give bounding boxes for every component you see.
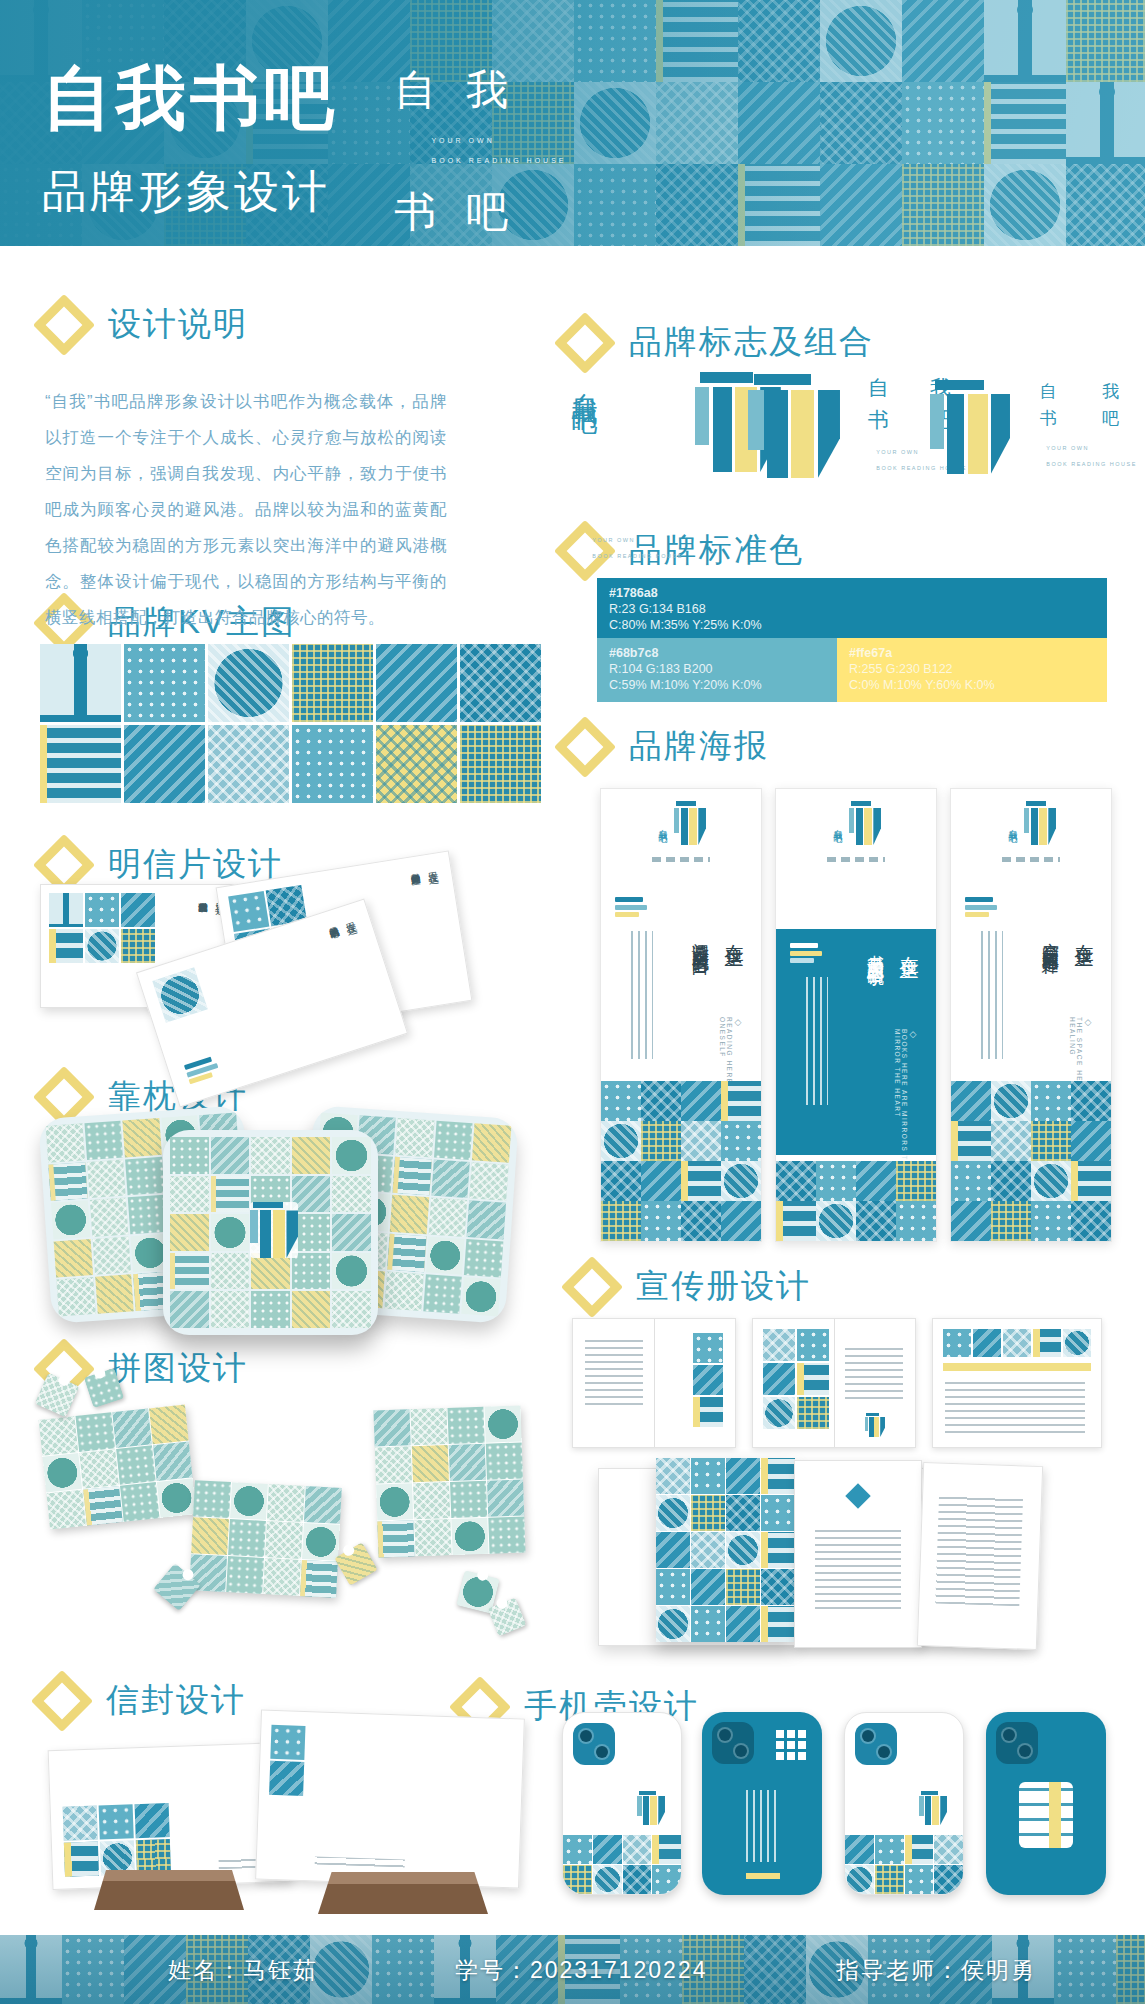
brochure-spread-1 (572, 1318, 736, 1448)
poster-logo-caption (1002, 857, 1060, 862)
pattern-tile (776, 1161, 816, 1201)
pattern-tile (856, 1161, 896, 1201)
trifold-right-panel (917, 1462, 1043, 1650)
footer-student-id: 学号：202317120224 (455, 1955, 708, 1986)
pattern-tile (373, 1409, 410, 1446)
pattern-tile (951, 1081, 991, 1121)
pattern-tile (652, 1865, 681, 1894)
pattern-tile (89, 1198, 128, 1237)
brand-mark (1024, 801, 1056, 845)
puzzle-mockups (40, 1388, 540, 1663)
brand-logotype: 自 我 YOUR OWN BOOK READING HOUSE 书 吧 (392, 62, 528, 240)
pattern-tile (191, 1517, 229, 1555)
pattern-tile (211, 1253, 250, 1290)
pattern-tile (845, 1835, 874, 1864)
poster-teal-panel: 在这里 书籍是照内心的镜子 ◇ BOOKS HERE ARE MIRRORS T… (776, 929, 936, 1155)
pattern-tile (376, 644, 457, 722)
pattern-tile (124, 644, 205, 722)
pattern-tile (951, 1161, 991, 1201)
diamond-icon (33, 293, 95, 355)
puzzle-cluster (39, 1405, 197, 1530)
pattern-tile (304, 1486, 342, 1524)
pattern-tile (385, 1272, 424, 1311)
diamond-mark (845, 1483, 870, 1508)
pattern-tile (797, 1329, 829, 1361)
section-title: 拼图设计 (108, 1346, 248, 1391)
poster-pattern-grid (951, 1081, 1111, 1241)
pattern-tile (40, 644, 121, 722)
pattern-tile (875, 1865, 904, 1894)
camera-module (573, 1723, 615, 1765)
brand-poster-2: 自我书吧 在这里 书籍是照内心的镜子 ◇ BOOKS HERE ARE MIRR… (775, 788, 937, 1242)
grid-logo (776, 1728, 808, 1760)
pattern-tile (691, 1569, 725, 1605)
id-label: 学号： (455, 1957, 530, 1983)
pattern-tile (450, 1481, 487, 1518)
phone-case-3 (844, 1712, 964, 1895)
poster-logo-chars: 自我书吧 (831, 801, 844, 851)
logo-char: 自 (392, 62, 438, 118)
pattern-tile (228, 1519, 266, 1557)
poster-logo-caption (827, 857, 885, 862)
envelope-caption-lines (315, 1856, 405, 1867)
pattern-tile (593, 1865, 622, 1894)
pattern-tile (211, 1291, 250, 1328)
brand-poster-1: 自我书吧 在这里 阅读是对自我的告白 ◇ READING HERE IS A C… (600, 788, 762, 1242)
pattern-tile (693, 1365, 723, 1395)
book-window-logo (1019, 1782, 1073, 1848)
poster-board: 自我书吧 品牌形象设计 自 我 YOUR OWN BOOK READING HO… (0, 0, 1145, 2004)
pillow-mockups (45, 1102, 525, 1337)
swatch-hex: #1786a8 (609, 585, 1107, 601)
brochure-text-lines (815, 1525, 901, 1609)
pattern-tile (593, 1835, 622, 1864)
pattern-tile (462, 1277, 501, 1316)
pattern-tile (377, 1520, 414, 1557)
diamond-icon (554, 715, 616, 777)
postcard-pattern (49, 893, 155, 963)
pattern-tile (447, 1407, 484, 1444)
pattern-tile (170, 1214, 209, 1251)
name-label: 姓名： (168, 1957, 243, 1983)
pattern-tile (763, 1397, 795, 1429)
pattern-tile (656, 1606, 690, 1642)
pattern-tile (251, 1253, 290, 1290)
pattern-tile (681, 1201, 721, 1241)
brochure-pattern (693, 1333, 723, 1427)
camera-module (855, 1723, 897, 1765)
books-icon (615, 897, 647, 919)
pattern-tile (135, 1803, 170, 1838)
diamond-icon (561, 1255, 623, 1317)
pattern-tile (170, 1137, 209, 1174)
pattern-tile (211, 1176, 250, 1213)
pattern-tile (121, 929, 155, 963)
swatch-rgb: R:255 G:230 B122 (849, 661, 1107, 677)
pattern-tile (905, 1835, 934, 1864)
pattern-tile (83, 1486, 123, 1526)
logo-english-caption: YOUR OWN BOOK READING HOUSE (392, 126, 528, 176)
pattern-tile (691, 1606, 725, 1642)
pattern-tile (376, 725, 457, 803)
footer-name: 姓名：马钰茹 (168, 1955, 318, 1986)
pattern-tile (991, 1121, 1031, 1161)
poster-logo-chars: 自我书吧 (1006, 801, 1019, 851)
pattern-tile (332, 1253, 371, 1290)
color-swatch-yellow: #ffe67a R:255 G:230 B122 C:0% M:10% Y:60… (837, 638, 1107, 702)
pattern-tile (412, 1445, 449, 1482)
logo-char: 吧 (464, 184, 510, 240)
pattern-tile (563, 1835, 592, 1864)
pattern-tile (726, 1532, 760, 1568)
brochure-spread-3 (932, 1318, 1102, 1448)
books-icon (184, 1055, 221, 1086)
brand-mark (865, 1413, 885, 1437)
lockup-en-caption: YOUR OWN BOOK READING HOUSE (568, 528, 683, 568)
envelope-2 (255, 1709, 525, 1888)
pattern-tile (395, 1118, 434, 1157)
pattern-tile (393, 1156, 432, 1195)
pattern-tile (292, 725, 373, 803)
poster-logo: 自我书吧 (1002, 801, 1060, 862)
pattern-tile (121, 893, 155, 927)
pattern-tile (49, 929, 83, 963)
pattern-tile (761, 1458, 795, 1494)
color-swatch-dark-teal: #1786a8 R:23 G:134 B168 C:80% M:35% Y:25… (597, 578, 1107, 638)
pattern-tile (693, 1397, 723, 1427)
section-header-poster: 品牌海报 (563, 724, 769, 769)
pattern-tile (934, 1865, 963, 1894)
lockup-chars: 自 我 书 吧 (1022, 380, 1137, 430)
puzzle-cluster (373, 1405, 525, 1557)
lockup-en1: YOUR OWN (876, 449, 919, 455)
pattern-tile (470, 1162, 509, 1201)
color-swatch-light-teal: #68b7c8 R:104 G:183 B200 C:59% M:10% Y:2… (597, 638, 837, 702)
pattern-tile (905, 1865, 934, 1894)
poster-pattern-grid (601, 1081, 761, 1241)
brochure-text-lines (845, 1343, 903, 1399)
diamond-icon (554, 311, 616, 373)
pattern-tile (488, 1516, 525, 1553)
pattern-tile (1063, 1329, 1091, 1357)
pattern-tile (49, 893, 83, 927)
pattern-tile (623, 1865, 652, 1894)
pattern-tile (292, 1291, 331, 1328)
pattern-tile (991, 1081, 1031, 1121)
pattern-tile (641, 1161, 681, 1201)
pattern-tile (875, 1835, 904, 1864)
pattern-tile (656, 1495, 690, 1531)
brand-mark (849, 801, 881, 845)
pattern-tile (973, 1329, 1001, 1357)
pattern-tile (230, 1482, 268, 1520)
brand-mark (919, 1791, 947, 1825)
pattern-tile (460, 725, 541, 803)
swatch-hex: #68b7c8 (609, 645, 837, 661)
brand-mark (930, 380, 1010, 474)
pattern-tile (263, 1558, 301, 1596)
poster-en-text: BOOKS HERE ARE MIRRORS THAT MIRROR THE H… (894, 1029, 908, 1178)
pattern-tile (896, 1161, 936, 1201)
pattern-tile (300, 1560, 338, 1598)
pattern-tile (54, 1239, 93, 1278)
case-logo-text (746, 1790, 780, 1862)
pattern-tile (691, 1458, 725, 1494)
pattern-tile (265, 1521, 303, 1559)
phone-case-1 (562, 1712, 682, 1895)
swatch-hex: #ffe67a (849, 645, 1107, 661)
lockup-en2: BOOK READING HOUSE (1046, 461, 1137, 467)
kv-pattern-grid (40, 644, 541, 803)
pattern-tile (991, 1201, 1031, 1241)
pattern-tile (46, 1123, 85, 1162)
brand-mark (674, 801, 706, 845)
section-header-logo-combo: 品牌标志及组合 (563, 320, 874, 365)
swatch-rgb: R:23 G:134 B168 (609, 601, 1107, 617)
pattern-tile (95, 1275, 134, 1314)
pattern-tile (375, 1446, 412, 1483)
wooden-stand (318, 1872, 488, 1914)
pattern-tile (761, 1606, 795, 1642)
pattern-tile (763, 1363, 795, 1395)
logo-char: 自 (852, 374, 904, 402)
pattern-tile (170, 1176, 209, 1213)
pattern-tile (128, 1195, 167, 1234)
pattern-tile (656, 1569, 690, 1605)
section-title: 宣传册设计 (636, 1264, 811, 1309)
pattern-tile (85, 929, 119, 963)
pattern-tile (434, 1121, 473, 1160)
books-icon (965, 897, 997, 919)
pattern-tile (761, 1532, 795, 1568)
pattern-tile (63, 1806, 98, 1841)
yellow-strip (943, 1363, 1091, 1371)
pattern-tile (124, 725, 205, 803)
name-value: 马钰茹 (243, 1957, 318, 1983)
pattern-tile (641, 1201, 681, 1241)
pattern-tile (193, 1480, 231, 1518)
brand-mark (250, 1202, 298, 1258)
trifold-pattern-panel (656, 1458, 795, 1642)
pattern-tile (1031, 1161, 1071, 1201)
logo-en-line2: BOOK READING HOUSE (432, 157, 567, 164)
pattern-tile (681, 1081, 721, 1121)
pattern-tile (64, 1841, 99, 1876)
pattern-tile (601, 1161, 641, 1201)
pattern-tile (292, 644, 373, 722)
pattern-tile (656, 1532, 690, 1568)
pattern-tile (1071, 1121, 1111, 1161)
envelope-pattern (269, 1725, 305, 1796)
pattern-tile (1071, 1081, 1111, 1121)
pattern-tile (46, 1490, 86, 1530)
pattern-tile (39, 1416, 79, 1456)
brochure-text-lines (585, 1339, 643, 1405)
swatch-rgb: R:104 G:183 B200 (609, 661, 837, 677)
logo-char: 我 (464, 62, 510, 118)
pattern-tile (332, 1176, 371, 1213)
pattern-tile (157, 1478, 197, 1518)
logotype-row-2: 书 吧 (392, 184, 528, 240)
logo-char: 我 (1084, 380, 1136, 403)
pattern-tile (1031, 1081, 1071, 1121)
envelope-mockups (50, 1714, 520, 1909)
pattern-tile (486, 1442, 523, 1479)
poster-fine-print (981, 931, 1003, 1059)
pattern-tile (84, 1121, 123, 1160)
lockup-en-caption: YOUR OWN BOOK READING HOUSE (1022, 436, 1137, 476)
camera-module (996, 1722, 1038, 1764)
pattern-tile (641, 1121, 681, 1161)
phone-case-2 (702, 1712, 822, 1895)
teacher-label: 指导老师： (836, 1957, 961, 1983)
pattern-tile (816, 1201, 856, 1241)
section-title: 设计说明 (108, 302, 248, 347)
pattern-tile (467, 1200, 506, 1239)
pattern-tile (413, 1482, 450, 1519)
pattern-tile (123, 1118, 162, 1157)
poster-logo-chars: 自我书吧 (656, 801, 669, 851)
pattern-tile (1071, 1161, 1111, 1201)
logo-char: 吧 (1084, 407, 1136, 430)
pattern-tile (451, 1518, 488, 1555)
pattern-tile (332, 1137, 371, 1174)
pattern-tile (211, 1214, 250, 1251)
footer-banner: 姓名：马钰茹 学号：202317120224 指导老师：侯明勇 (0, 1935, 1145, 2004)
page-title: 自我书吧 (42, 52, 338, 146)
pattern-tile (472, 1123, 511, 1162)
puzzle-cluster (189, 1480, 342, 1598)
logo-char: 书 (392, 184, 438, 240)
section-header-brochure: 宣传册设计 (570, 1264, 811, 1309)
case-pattern-strip (845, 1835, 963, 1894)
section-title: 品牌标志及组合 (629, 320, 874, 365)
pattern-tile (991, 1161, 1031, 1201)
pattern-tile (691, 1495, 725, 1531)
pattern-tile (721, 1121, 761, 1161)
pattern-tile (170, 1253, 209, 1290)
pattern-tile (721, 1081, 761, 1121)
pattern-tile (251, 1137, 290, 1174)
pattern-tile (387, 1233, 426, 1272)
pattern-tile (116, 1445, 156, 1485)
pattern-tile (211, 1137, 250, 1174)
pattern-tile (464, 1239, 503, 1278)
poster-logo: 自我书吧 (652, 801, 710, 862)
pattern-tile (92, 1236, 131, 1275)
pattern-tile (208, 644, 289, 722)
poster-logo-caption (652, 857, 710, 862)
pattern-tile (726, 1569, 760, 1605)
pattern-tile (43, 1453, 83, 1493)
trifold-center-panel (794, 1460, 922, 1648)
pattern-tile (75, 1412, 115, 1452)
yellow-bar (746, 1873, 780, 1879)
case-pattern-strip (563, 1835, 681, 1894)
brand-poster-3: 自我书吧 在这里 空间是疗愈的再延伸 ◇ THE SPACE HERE IS A… (950, 788, 1112, 1242)
pattern-tile (845, 1865, 874, 1894)
pattern-tile (153, 1441, 193, 1481)
pattern-tile (376, 1483, 413, 1520)
pattern-tile (934, 1835, 963, 1864)
lockup-en2: BOOK READING HOUSE (592, 553, 683, 559)
logo-lockup-3: 自 我 书 吧 YOUR OWN BOOK READING HOUSE (930, 380, 1137, 476)
header-banner: 自我书吧 品牌形象设计 自 我 YOUR OWN BOOK READING HO… (0, 0, 1145, 246)
swatch-cmyk: C:80% M:35% Y:25% K:0% (609, 617, 1107, 633)
pattern-tile (652, 1835, 681, 1864)
pattern-tile (721, 1201, 761, 1241)
pattern-tile (410, 1408, 447, 1445)
lockup-chars: 自我书吧 (568, 372, 603, 522)
pattern-tile (270, 1725, 305, 1760)
header-titles: 自我书吧 品牌形象设计 (42, 52, 338, 222)
brochure-text-lines (945, 1381, 1085, 1433)
pattern-tile (332, 1214, 371, 1251)
pattern-tile (136, 1839, 171, 1874)
pattern-tile (601, 1121, 641, 1161)
brochure-pattern (943, 1329, 1091, 1357)
pattern-tile (816, 1161, 856, 1201)
logo-char: 自 (1022, 380, 1074, 403)
pattern-tile (681, 1121, 721, 1161)
pattern-tile (763, 1329, 795, 1361)
pattern-tile (1031, 1121, 1071, 1161)
pattern-tile (269, 1761, 304, 1796)
pattern-tile (951, 1121, 991, 1161)
poster-fine-print (806, 977, 828, 1105)
lockup-en1: YOUR OWN (592, 537, 635, 543)
logo-char: 书 (1022, 407, 1074, 430)
pattern-tile (721, 1161, 761, 1201)
pattern-tile (1071, 1201, 1111, 1241)
fold-line (654, 1319, 655, 1447)
pattern-tile (563, 1865, 592, 1894)
phonecase-mockups (562, 1712, 1122, 1902)
pattern-tile (152, 967, 207, 1022)
pattern-tile (726, 1458, 760, 1494)
swatch-cmyk: C:0% M:10% Y:60% K:0% (849, 677, 1107, 693)
pattern-tile (428, 1198, 467, 1237)
brand-mark (637, 1791, 665, 1825)
pattern-tile (292, 1253, 331, 1290)
fold-line (834, 1319, 835, 1447)
wooden-stand (94, 1870, 244, 1910)
pattern-tile (267, 1484, 305, 1522)
pattern-tile (423, 1275, 462, 1314)
logo-en-line1: YOUR OWN (431, 137, 494, 144)
postcard-text: 在这里 空间是疗愈的再延伸 (408, 863, 458, 996)
pattern-tile (1033, 1329, 1061, 1357)
pattern-tile (51, 1200, 90, 1239)
footer-teacher: 指导老师：侯明勇 (836, 1955, 1036, 1986)
lockup-en1: YOUR OWN (1046, 445, 1089, 451)
pattern-tile (601, 1201, 641, 1241)
page-subtitle: 品牌形象设计 (42, 162, 338, 222)
pattern-tile (292, 1137, 331, 1174)
pattern-tile (693, 1333, 723, 1363)
brochure-text-lines (935, 1494, 1023, 1607)
envelope-1 (48, 1742, 291, 1890)
pattern-tile (487, 1479, 524, 1516)
pattern-tile (226, 1556, 264, 1594)
pattern-tile (85, 893, 119, 927)
pattern-tile (641, 1081, 681, 1121)
pattern-tile (726, 1495, 760, 1531)
pattern-tile (656, 1458, 690, 1494)
postcard-mockups: 在这里 阅读是对自我的告白 在这里 空间是疗愈的再延伸 在这里 书籍是照内心的镜… (40, 868, 540, 1088)
id-value: 202317120224 (530, 1957, 708, 1983)
swatch-cmyk: C:59% M:10% Y:20% K:0% (609, 677, 837, 693)
